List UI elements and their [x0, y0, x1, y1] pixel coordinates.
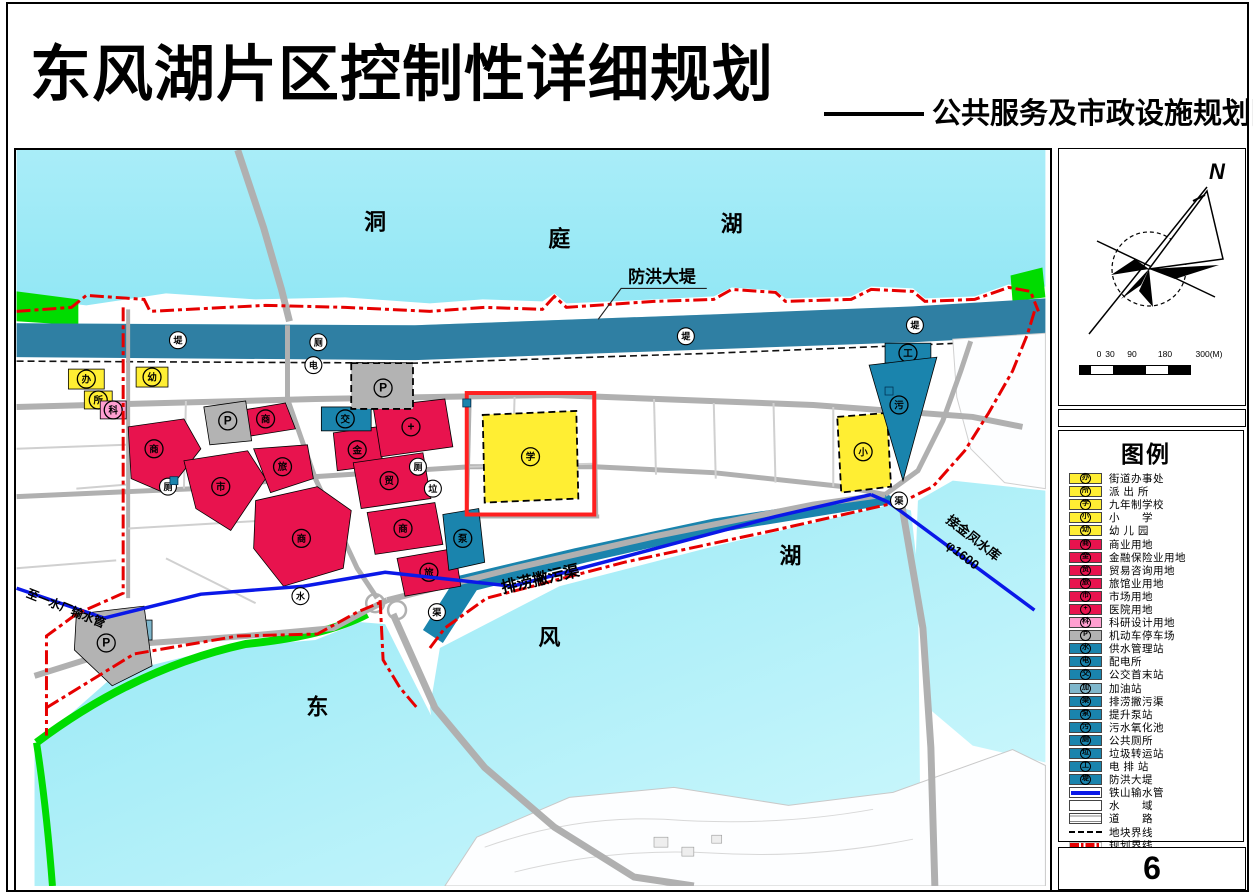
facility-symbol: 垃	[428, 483, 437, 494]
legend-symbol: 厕	[1080, 735, 1091, 746]
scale-segments	[1079, 365, 1191, 375]
zone-symbol: 工	[903, 349, 913, 360]
facility-symbol: 堤	[173, 335, 183, 345]
legend-swatch-yellow: 办	[1069, 473, 1102, 484]
zone-symbol: 科	[107, 404, 118, 416]
zone-symbol: 金	[351, 444, 362, 456]
zone-symbol: P	[102, 635, 110, 649]
legend-swatch-teal: 厕	[1069, 735, 1102, 746]
facility-symbol: 电	[309, 359, 318, 370]
legend-symbol: 渠	[1080, 696, 1091, 707]
legend-swatch-pink: 科	[1069, 617, 1102, 628]
legend-swatch-yellow: 所	[1069, 486, 1102, 497]
facility-symbol: 堤	[910, 320, 920, 330]
sheet-number-box: 6	[1058, 847, 1246, 890]
scale-segment	[1168, 366, 1190, 374]
zone-symbol: 商	[398, 523, 408, 535]
map-label: 湖	[779, 543, 801, 568]
map-label: 庭	[548, 227, 570, 252]
map-label: 防洪大堤	[628, 266, 697, 286]
legend-row: 地块界线	[1069, 826, 1243, 839]
legend-swatch-red: 贸	[1069, 565, 1102, 576]
pipe-line-sample	[1071, 791, 1100, 795]
legend-symbol: 垃	[1080, 748, 1091, 759]
zone-symbol: 办	[82, 374, 92, 386]
legend-swatch-red: 金	[1069, 552, 1102, 563]
legend-swatch-gray: P	[1069, 630, 1102, 641]
legend-row: 小小 学	[1069, 511, 1243, 524]
legend-swatch-red: 旅	[1069, 578, 1102, 589]
legend-symbol: 工	[1080, 761, 1091, 772]
compass-petal-west	[1111, 259, 1149, 275]
legend-swatch-yellow: 幼	[1069, 525, 1102, 536]
scale-tick-label: 300(M)	[1196, 349, 1223, 359]
legend-row: 垃垃圾转运站	[1069, 747, 1243, 760]
legend-swatch-teal: 水	[1069, 643, 1102, 654]
legend-row: 所派 出 所	[1069, 485, 1243, 498]
legend-symbol: 办	[1080, 473, 1091, 484]
facility-symbol: 厕	[314, 337, 323, 347]
legend-symbol: 堤	[1080, 774, 1091, 785]
zone-symbol: 小	[857, 446, 868, 458]
legend-swatch-teal: 堤	[1069, 774, 1102, 785]
legend-symbol: 泵	[1080, 709, 1091, 720]
legend-swatch-yellow: 学	[1069, 499, 1102, 510]
legend-panel: 图例 办街道办事处所派 出 所学九年制学校小小 学幼幼 儿 园商商业用地金金融保…	[1058, 430, 1244, 842]
legend-symbol: 市	[1080, 591, 1091, 602]
legend-row: 厕公共厕所	[1069, 734, 1243, 747]
legend-row: 工电 排 站	[1069, 760, 1243, 773]
legend-symbol: +	[1080, 604, 1091, 615]
zone-symbol: 旅	[278, 461, 288, 473]
zone-symbol: 学	[526, 451, 536, 463]
legend-swatch-teal: 电	[1069, 656, 1102, 667]
legend-symbol: 旅	[1080, 578, 1091, 589]
map-label: 东	[306, 695, 328, 720]
zone-symbol: 幼	[147, 372, 156, 384]
legend-swatch-yellow: 小	[1069, 512, 1102, 523]
page-subtitle: 公共服务及市政设施规划图	[932, 90, 1253, 132]
zone-symbol: 污	[894, 399, 904, 411]
zone-symbol: 泵	[457, 534, 468, 545]
legend-row: 市市场用地	[1069, 590, 1243, 603]
legend-row: P机动车停车场	[1069, 629, 1243, 642]
legend-swatch-red: 市	[1069, 591, 1102, 602]
facility-square	[885, 387, 893, 395]
zone-symbol: 商	[261, 413, 271, 425]
scale-tick-label: 180	[1158, 349, 1172, 359]
legend-row: 科科研设计用地	[1069, 616, 1243, 629]
legend-swatch-teal: 垃	[1069, 748, 1102, 759]
legend-swatch-blackdash	[1069, 831, 1102, 833]
legend-symbol: 加	[1080, 683, 1091, 694]
legend-row: 污污水氧化池	[1069, 721, 1243, 734]
compass-scale-box: N 03090180300(M)	[1058, 148, 1246, 406]
compass-needle-white	[1149, 191, 1223, 269]
scale-tick-label: 0	[1097, 349, 1102, 359]
legend-row: 泵提升泵站	[1069, 708, 1243, 721]
zone-symbol: 商	[149, 443, 159, 455]
legend-swatch-water	[1069, 800, 1102, 811]
legend-symbol: 学	[1080, 499, 1091, 510]
legend-swatch-teal: 渠	[1069, 696, 1102, 707]
legend-symbol: 交	[1080, 669, 1091, 680]
zone-symbol: 贸	[384, 475, 394, 487]
legend-title: 图例	[1121, 435, 1243, 469]
legend-swatch-teal: 泵	[1069, 709, 1102, 720]
legend-symbol: 水	[1080, 643, 1091, 654]
legend-row: 交公交首末站	[1069, 668, 1243, 681]
spacer-strip	[1058, 409, 1246, 427]
legend-row: 幼幼 儿 园	[1069, 524, 1243, 537]
legend-row: 道 路	[1069, 812, 1243, 825]
legend-row: 旅旅馆业用地	[1069, 577, 1243, 590]
planning-map: 办所科幼学小商商市旅商金+贸商旅交泵工污加PPP 电厕厕厕垃堤堤堤水渠渠 洞庭湖…	[16, 150, 1046, 886]
legend-row: 商商业用地	[1069, 537, 1243, 550]
facility-symbol: 渠	[894, 495, 904, 506]
legend-symbol: 污	[1080, 722, 1091, 733]
legend-swatch-teal: 污	[1069, 722, 1102, 733]
legend-swatch-teal: 交	[1069, 669, 1102, 680]
legend-row: 电配电所	[1069, 655, 1243, 668]
legend-swatch-red: 商	[1069, 539, 1102, 550]
legend-symbol: 电	[1080, 656, 1091, 667]
map-canvas: 办所科幼学小商商市旅商金+贸商旅交泵工污加PPP 电厕厕厕垃堤堤堤水渠渠 洞庭湖…	[14, 148, 1052, 892]
scale-segment	[1080, 366, 1091, 374]
zone-symbol: 市	[216, 481, 226, 493]
zone-symbol: 商	[297, 533, 307, 545]
north-label: N	[1209, 159, 1226, 184]
legend-row: 贸贸易咨询用地	[1069, 564, 1243, 577]
zone-symbol: 交	[341, 413, 351, 425]
scale-segment	[1113, 366, 1146, 374]
legend-row: 金金融保险业用地	[1069, 551, 1243, 564]
page-title: 东风湖片区控制性详细规划	[30, 24, 774, 113]
legend-symbol: 金	[1080, 552, 1091, 563]
map-label: 洞	[364, 210, 386, 235]
map-label: 风	[538, 625, 560, 650]
facility-square	[463, 399, 471, 407]
scale-segment	[1146, 366, 1168, 374]
scale-tick-label: 90	[1127, 349, 1136, 359]
scale-tick-label: 30	[1105, 349, 1114, 359]
scale-bar: 03090180300(M)	[1073, 349, 1233, 389]
legend-swatch-blueline	[1069, 787, 1102, 798]
zone-symbol: P	[379, 381, 387, 395]
facility-symbol: 渠	[431, 606, 441, 617]
legend-row: 铁山输水管	[1069, 786, 1243, 799]
facility-symbol: 水	[296, 590, 306, 601]
facility-symbol: 厕	[413, 462, 422, 472]
legend-row: 堤防洪大堤	[1069, 773, 1243, 786]
zone-symbol: +	[407, 419, 414, 433]
legend-swatch-red: +	[1069, 604, 1102, 615]
legend-symbol: 幼	[1080, 525, 1091, 536]
legend-row: 办街道办事处	[1069, 472, 1243, 485]
legend-symbol: 商	[1080, 539, 1091, 550]
title-block: 东风湖片区控制性详细规划 公共服务及市政设施规划图	[24, 18, 1234, 136]
facility-square	[170, 477, 178, 485]
legend-row: +医院用地	[1069, 603, 1243, 616]
legend-row: 水供水管理站	[1069, 642, 1243, 655]
legend-symbol: 所	[1080, 486, 1091, 497]
sheet-number: 6	[1143, 850, 1161, 887]
legend-row: 学九年制学校	[1069, 498, 1243, 511]
compass-rose: N	[1059, 149, 1243, 349]
legend-swatch-road	[1069, 813, 1102, 824]
facility-symbol: 堤	[681, 331, 691, 341]
plan-sheet: 东风湖片区控制性详细规划 公共服务及市政设施规划图	[0, 0, 1253, 894]
legend-swatch-tealLight: 加	[1069, 683, 1102, 694]
title-dash-line	[824, 112, 924, 116]
legend-row: 加加油站	[1069, 682, 1243, 695]
legend-items: 办街道办事处所派 出 所学九年制学校小小 学幼幼 儿 园商商业用地金金融保险业用…	[1069, 472, 1243, 852]
legend-symbol: 科	[1080, 617, 1091, 628]
legend-symbol: 小	[1080, 512, 1091, 523]
legend-swatch-teal: 工	[1069, 761, 1102, 772]
legend-row: 水 域	[1069, 799, 1243, 812]
legend-row: 渠排涝撇污渠	[1069, 695, 1243, 708]
zone-symbol: P	[224, 413, 232, 427]
map-label: 湖	[721, 212, 743, 237]
legend-symbol: P	[1080, 630, 1091, 641]
legend-symbol: 贸	[1080, 565, 1091, 576]
scale-segment	[1091, 366, 1113, 374]
